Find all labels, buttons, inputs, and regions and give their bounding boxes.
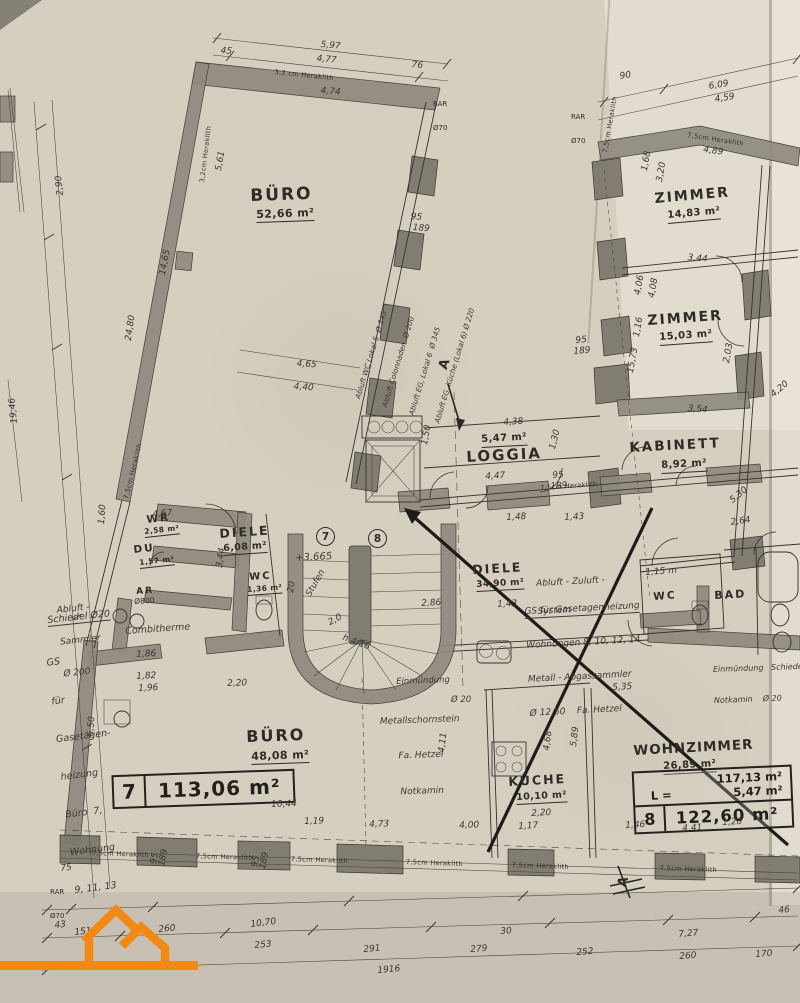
immovos-houses-icon bbox=[0, 895, 260, 1003]
annotation-line: Wohnungen 8, 10, 12, 14 bbox=[526, 635, 642, 652]
dimension-label: 4,74 bbox=[320, 86, 341, 98]
dimension-label: 46 bbox=[778, 905, 790, 916]
circled-number-8: 8 bbox=[368, 529, 387, 548]
dimension-label: 170 bbox=[755, 949, 773, 960]
dimension-label: 1,46 bbox=[625, 820, 646, 831]
circled-number-7-text: 7 bbox=[322, 531, 329, 543]
dimension-label: 10,44 bbox=[271, 799, 297, 810]
annotation-line: Ø 12,50 Fa. Hetzel bbox=[530, 703, 646, 720]
dimension-label: 5,97 bbox=[320, 40, 341, 52]
room-area-ar: Ø800 bbox=[134, 597, 155, 606]
room-label-wc-left: WC bbox=[249, 571, 272, 583]
unit-7-total-box: 7 113,06 m² bbox=[111, 769, 295, 809]
room-label-bad: BAD bbox=[714, 588, 747, 601]
stair-step-count: 20 bbox=[287, 581, 298, 594]
dimension-label: 1,86 bbox=[136, 649, 157, 660]
annotation-line: Metallschornstein bbox=[380, 715, 460, 729]
dimension-label: 260 bbox=[679, 951, 697, 962]
dimension-label: 1,43 bbox=[564, 512, 585, 523]
annotation-line: Büro 7, bbox=[65, 803, 121, 822]
dimension-label: 5,35 bbox=[612, 682, 633, 693]
dimension-label: 4,73 bbox=[369, 819, 389, 830]
dimension-label: 6,50 bbox=[86, 716, 97, 737]
annotation-line: Gasetagen- bbox=[55, 727, 111, 746]
room-label-du: DU bbox=[133, 543, 155, 556]
dimension-label: 4,67 bbox=[152, 508, 173, 520]
annotation-line: für bbox=[51, 689, 107, 708]
unit-8-total-box: 117,13 m² L = 5,47 m² 8 122,60 m² bbox=[632, 765, 795, 835]
dimension-label: 1,43 bbox=[497, 599, 518, 610]
dimension-label: 291 bbox=[363, 944, 381, 955]
dimension-label: 95 bbox=[575, 335, 587, 346]
annotation-line: Fa. Hetzel bbox=[381, 750, 461, 764]
dimension-label: 252 bbox=[576, 947, 594, 958]
annotation-line: RAR bbox=[433, 100, 447, 108]
dimension-label: 189 bbox=[573, 346, 591, 357]
circled-number-7: 7 bbox=[316, 527, 335, 546]
room-label-buero-top: BÜRO bbox=[250, 186, 313, 206]
annotation-line: Einmündung Schiedel bbox=[713, 662, 800, 676]
annotation-metallschornstein: Metallschornstein Fa. Hetzel Notkamin bbox=[379, 691, 463, 822]
annotation-line: Ø70 bbox=[433, 124, 447, 132]
dimension-label: 4,47 bbox=[485, 471, 506, 482]
annotation-rar: RAR Ø70 bbox=[433, 84, 447, 148]
room-area-buero-top: 52,66 m² bbox=[256, 207, 315, 223]
dimension-label: 1,82 bbox=[136, 671, 157, 682]
dimension-label: 95 bbox=[410, 212, 422, 223]
dimension-label: 4,65 bbox=[296, 359, 317, 370]
annotation-line: GS für Gasetagenheizung bbox=[524, 600, 640, 618]
dimension-label: 2,20 bbox=[531, 808, 552, 819]
room-label-kueche: KÜCHE bbox=[508, 772, 566, 788]
dimension-label: 2,86 bbox=[421, 598, 442, 609]
scanned-floorplan-page: BÜRO 52,66 m² ZIMMER 14,83 m² ZIMMER 15,… bbox=[0, 0, 800, 1003]
dimension-label: 1,96 bbox=[138, 683, 159, 694]
dimension-label: 2,20 bbox=[227, 678, 247, 689]
unit-8-loggia-prefix: L = bbox=[650, 788, 672, 803]
room-label-diele-upper: DIELE bbox=[219, 524, 270, 541]
dimension-label: 3,54 bbox=[687, 404, 708, 415]
dimension-label: 2,90 bbox=[54, 175, 66, 196]
room-label-buero-bottom: BÜRO bbox=[246, 727, 306, 746]
room-label-diele-main: DIELE bbox=[472, 560, 523, 576]
dimension-label: 30 bbox=[500, 926, 512, 937]
circled-number-8-text: 8 bbox=[374, 533, 381, 545]
dimension-label: 1,48 bbox=[506, 512, 527, 523]
unit-8-loggia-area: 5,47 m² bbox=[733, 783, 783, 799]
dimension-label: 1,20 bbox=[722, 817, 743, 828]
room-label-wc-right: WC bbox=[653, 590, 677, 603]
dimension-label: 4,40 bbox=[293, 382, 314, 393]
dimension-label: 76 bbox=[411, 60, 423, 71]
annotation-line: GS bbox=[46, 652, 102, 671]
dimension-label: 279 bbox=[470, 944, 488, 955]
dimension-label: 7,27 bbox=[678, 928, 699, 940]
annotation-gas-heizung: GS für Gasetagenheizung Wohnungen 8, 10,… bbox=[523, 578, 646, 742]
dimension-label: 4,77 bbox=[316, 54, 337, 66]
dimension-label: 4,00 bbox=[459, 820, 479, 831]
dimension-label: 1,17 bbox=[518, 821, 539, 832]
annotation-notkamin: Einmündung Schiedel Notkamin Ø 20 bbox=[712, 641, 800, 727]
annotation-line: heizung bbox=[60, 765, 116, 784]
dimension-label: 189 bbox=[412, 223, 430, 234]
dimension-label: 3,44 bbox=[687, 253, 708, 265]
annotation-rar: RAR Ø70 bbox=[571, 97, 585, 161]
dimension-label: 4,38 bbox=[503, 417, 524, 428]
dimension-label: 90 bbox=[619, 70, 632, 82]
room-area-buero-bottom: 48,08 m² bbox=[251, 749, 310, 765]
annotation-phi20: Ø 20 bbox=[451, 696, 471, 705]
dimension-label: 4,41 bbox=[682, 823, 703, 834]
dimension-label: 1916 bbox=[377, 964, 401, 976]
annotation-line: Notkamin bbox=[382, 785, 462, 799]
annotation-line: Notkamin Ø 20 bbox=[714, 693, 800, 707]
dimension-label: 1,60 bbox=[97, 504, 108, 525]
immovos-logo: IMMOVOS.AT bbox=[0, 895, 260, 1003]
room-area-kabinett: 8,92 m² bbox=[661, 459, 707, 474]
annotation-einmuendung: Einmündung bbox=[396, 676, 450, 687]
dimension-label: 75 bbox=[60, 863, 72, 874]
annotation-line: RAR bbox=[571, 113, 585, 121]
dimension-label: 1,19 bbox=[304, 816, 324, 827]
dimension-label: 95 bbox=[552, 470, 564, 481]
annotation-line: Ø70 bbox=[571, 137, 585, 145]
stair-level-label: +3.665 bbox=[295, 552, 333, 564]
dimension-label: 45 bbox=[220, 46, 232, 57]
